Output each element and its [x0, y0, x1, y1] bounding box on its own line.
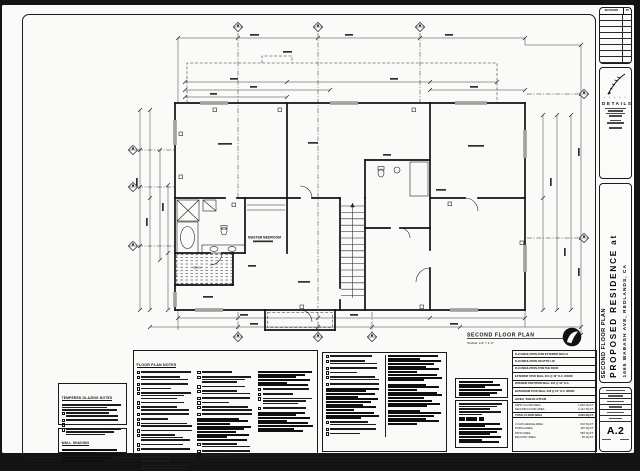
note-row [326, 421, 381, 427]
grid-lines [138, 33, 579, 332]
scanned-drawing-sheet: { "plan": { "title": "SECOND FLOOR PLAN"… [0, 0, 640, 459]
fixtures [177, 162, 478, 322]
tempered-glazing-title: TEMPERED GLAZING NOTES [62, 396, 113, 401]
plan-title: SECOND FLOOR PLAN [467, 333, 535, 339]
note-row [62, 412, 124, 418]
note-row [258, 388, 315, 391]
general-notes-panel [322, 352, 447, 452]
note-row [137, 453, 194, 459]
note-row [326, 367, 381, 370]
area-tabulation-table: FIRST FLOOR AREA1,864 SQ.FT.SECOND FLOOR… [513, 403, 596, 439]
north-arrow-icon [563, 328, 582, 347]
note-row [137, 464, 194, 470]
area-row: BALCONY AREA55 SQ.FT. [513, 435, 596, 439]
grid-bubble-markers [128, 22, 588, 341]
note-row [197, 397, 254, 400]
note-text [459, 403, 505, 415]
note-row [137, 401, 194, 404]
note-row [326, 383, 381, 386]
plan-scale: SCALE: 1/4" = 1'-0" [467, 341, 494, 345]
insulation-note: R-19 INSULATION ON ATTIC LID [513, 358, 596, 365]
fixture-note-panel [455, 378, 508, 398]
fixture-brand-mark [459, 417, 505, 422]
room-label-deck: DECK [193, 266, 201, 270]
sheet-info-row [600, 416, 631, 422]
note-row [197, 443, 254, 449]
insulation-note: R-13 INSULATION AT/IN EXTERIOR WALLS [513, 351, 596, 358]
note-row [326, 360, 381, 366]
note-row [197, 413, 254, 416]
note-row [197, 450, 254, 453]
note-row [326, 432, 381, 435]
project-address: 1665 WABASH AVE, REDLANDS, CA [623, 264, 628, 378]
walls [175, 103, 525, 330]
tempered-glazing-notes-panel: TEMPERED GLAZING NOTES [58, 383, 127, 425]
floor-plan-drawing: MASTER BEDROOM DECK SECOND FLOOR PLAN SC… [20, 8, 595, 348]
notes-column [197, 371, 254, 471]
wall-shading-title: WALL SHADING [62, 441, 90, 446]
logo-dots: • • • • • [602, 96, 629, 99]
dimension-lines [140, 38, 581, 335]
area-row: TOTAL FLOOR AREA3,291 SQ.FT. [513, 412, 596, 418]
note-row [258, 393, 315, 396]
area-tabulation-title: AREA TABULATION [513, 395, 596, 404]
note-row [326, 371, 381, 374]
note-row [197, 385, 254, 388]
note-row [137, 383, 194, 386]
note-text [62, 449, 124, 462]
deck-hatch [177, 254, 233, 284]
note-text [459, 423, 505, 444]
logo-address [605, 108, 627, 117]
note-row [197, 376, 254, 384]
note-row [197, 371, 254, 374]
note-row [258, 397, 315, 405]
room-label-master-bedroom: MASTER BEDROOM [248, 236, 281, 240]
note-row [137, 422, 194, 428]
note-text [62, 404, 124, 411]
note-row [197, 454, 254, 457]
roof-dashed-outline [177, 56, 498, 328]
sheet-footer [600, 437, 631, 441]
note-row [137, 376, 194, 382]
designer-logo-block: • • • • • DETAILS [599, 67, 632, 179]
note-row [197, 406, 254, 412]
project-title-block: SECOND FLOOR PLAN PROPOSED RESIDENCE at … [599, 183, 632, 383]
note-row [137, 434, 194, 442]
note-row [326, 428, 381, 431]
quill-icon [605, 72, 627, 96]
floor-plan-notes-panel: FLOOR PLAN NOTES [133, 350, 318, 455]
note-row [137, 429, 194, 432]
note-row [137, 392, 194, 400]
revisions-table: REVISIONS BY [599, 7, 632, 64]
wall-shading-panel: WALL SHADING [58, 428, 127, 453]
sheet-number: A.2 [600, 425, 631, 437]
revisions-header: REVISIONS [600, 8, 623, 14]
note-row [326, 355, 381, 358]
notes-column [137, 371, 194, 471]
note-row [137, 448, 194, 451]
wall-type-note: EXTERIOR STUD WALL 2X4 @ 16" O.C. WOOD [513, 373, 596, 380]
logo-contact [606, 120, 625, 124]
by-header: BY [623, 8, 631, 14]
note-row [62, 423, 124, 426]
note-row [326, 376, 381, 382]
sheet-title: SECOND FLOOR PLAN [601, 308, 607, 378]
wall-type-note: INTERIOR PARTITION WALL 2X4 @ 16" O.C. [513, 381, 596, 388]
notes-column [258, 371, 315, 471]
note-row [137, 387, 194, 390]
fixture-spec-panel [455, 400, 508, 448]
insulation-area-panel: R-13 INSULATION AT/IN EXTERIOR WALLS R-1… [512, 350, 597, 452]
logo-name: DETAILS [602, 101, 629, 106]
note-row [137, 413, 194, 416]
dimension-ticks [138, 36, 583, 337]
notes-column [326, 355, 381, 437]
note-row [137, 371, 194, 374]
note-text [459, 381, 505, 396]
note-row [137, 406, 194, 412]
note-row [197, 401, 254, 404]
sheet-info-block: A.2 [599, 387, 632, 452]
stair [341, 203, 364, 298]
note-row [137, 443, 194, 446]
insulation-note: R-13 INSULATION AT/IN THE ROOF [513, 366, 596, 373]
note-row [258, 407, 315, 410]
note-row [62, 419, 124, 422]
note-row [137, 418, 194, 421]
revision-row [600, 57, 631, 63]
notes-column [385, 355, 444, 437]
floor-plan-notes-title: FLOOR PLAN NOTES [137, 363, 177, 368]
note-row [197, 390, 254, 396]
logo-phone [608, 127, 623, 129]
project-name: PROPOSED RESIDENCE at [609, 234, 618, 378]
note-row [137, 460, 194, 463]
